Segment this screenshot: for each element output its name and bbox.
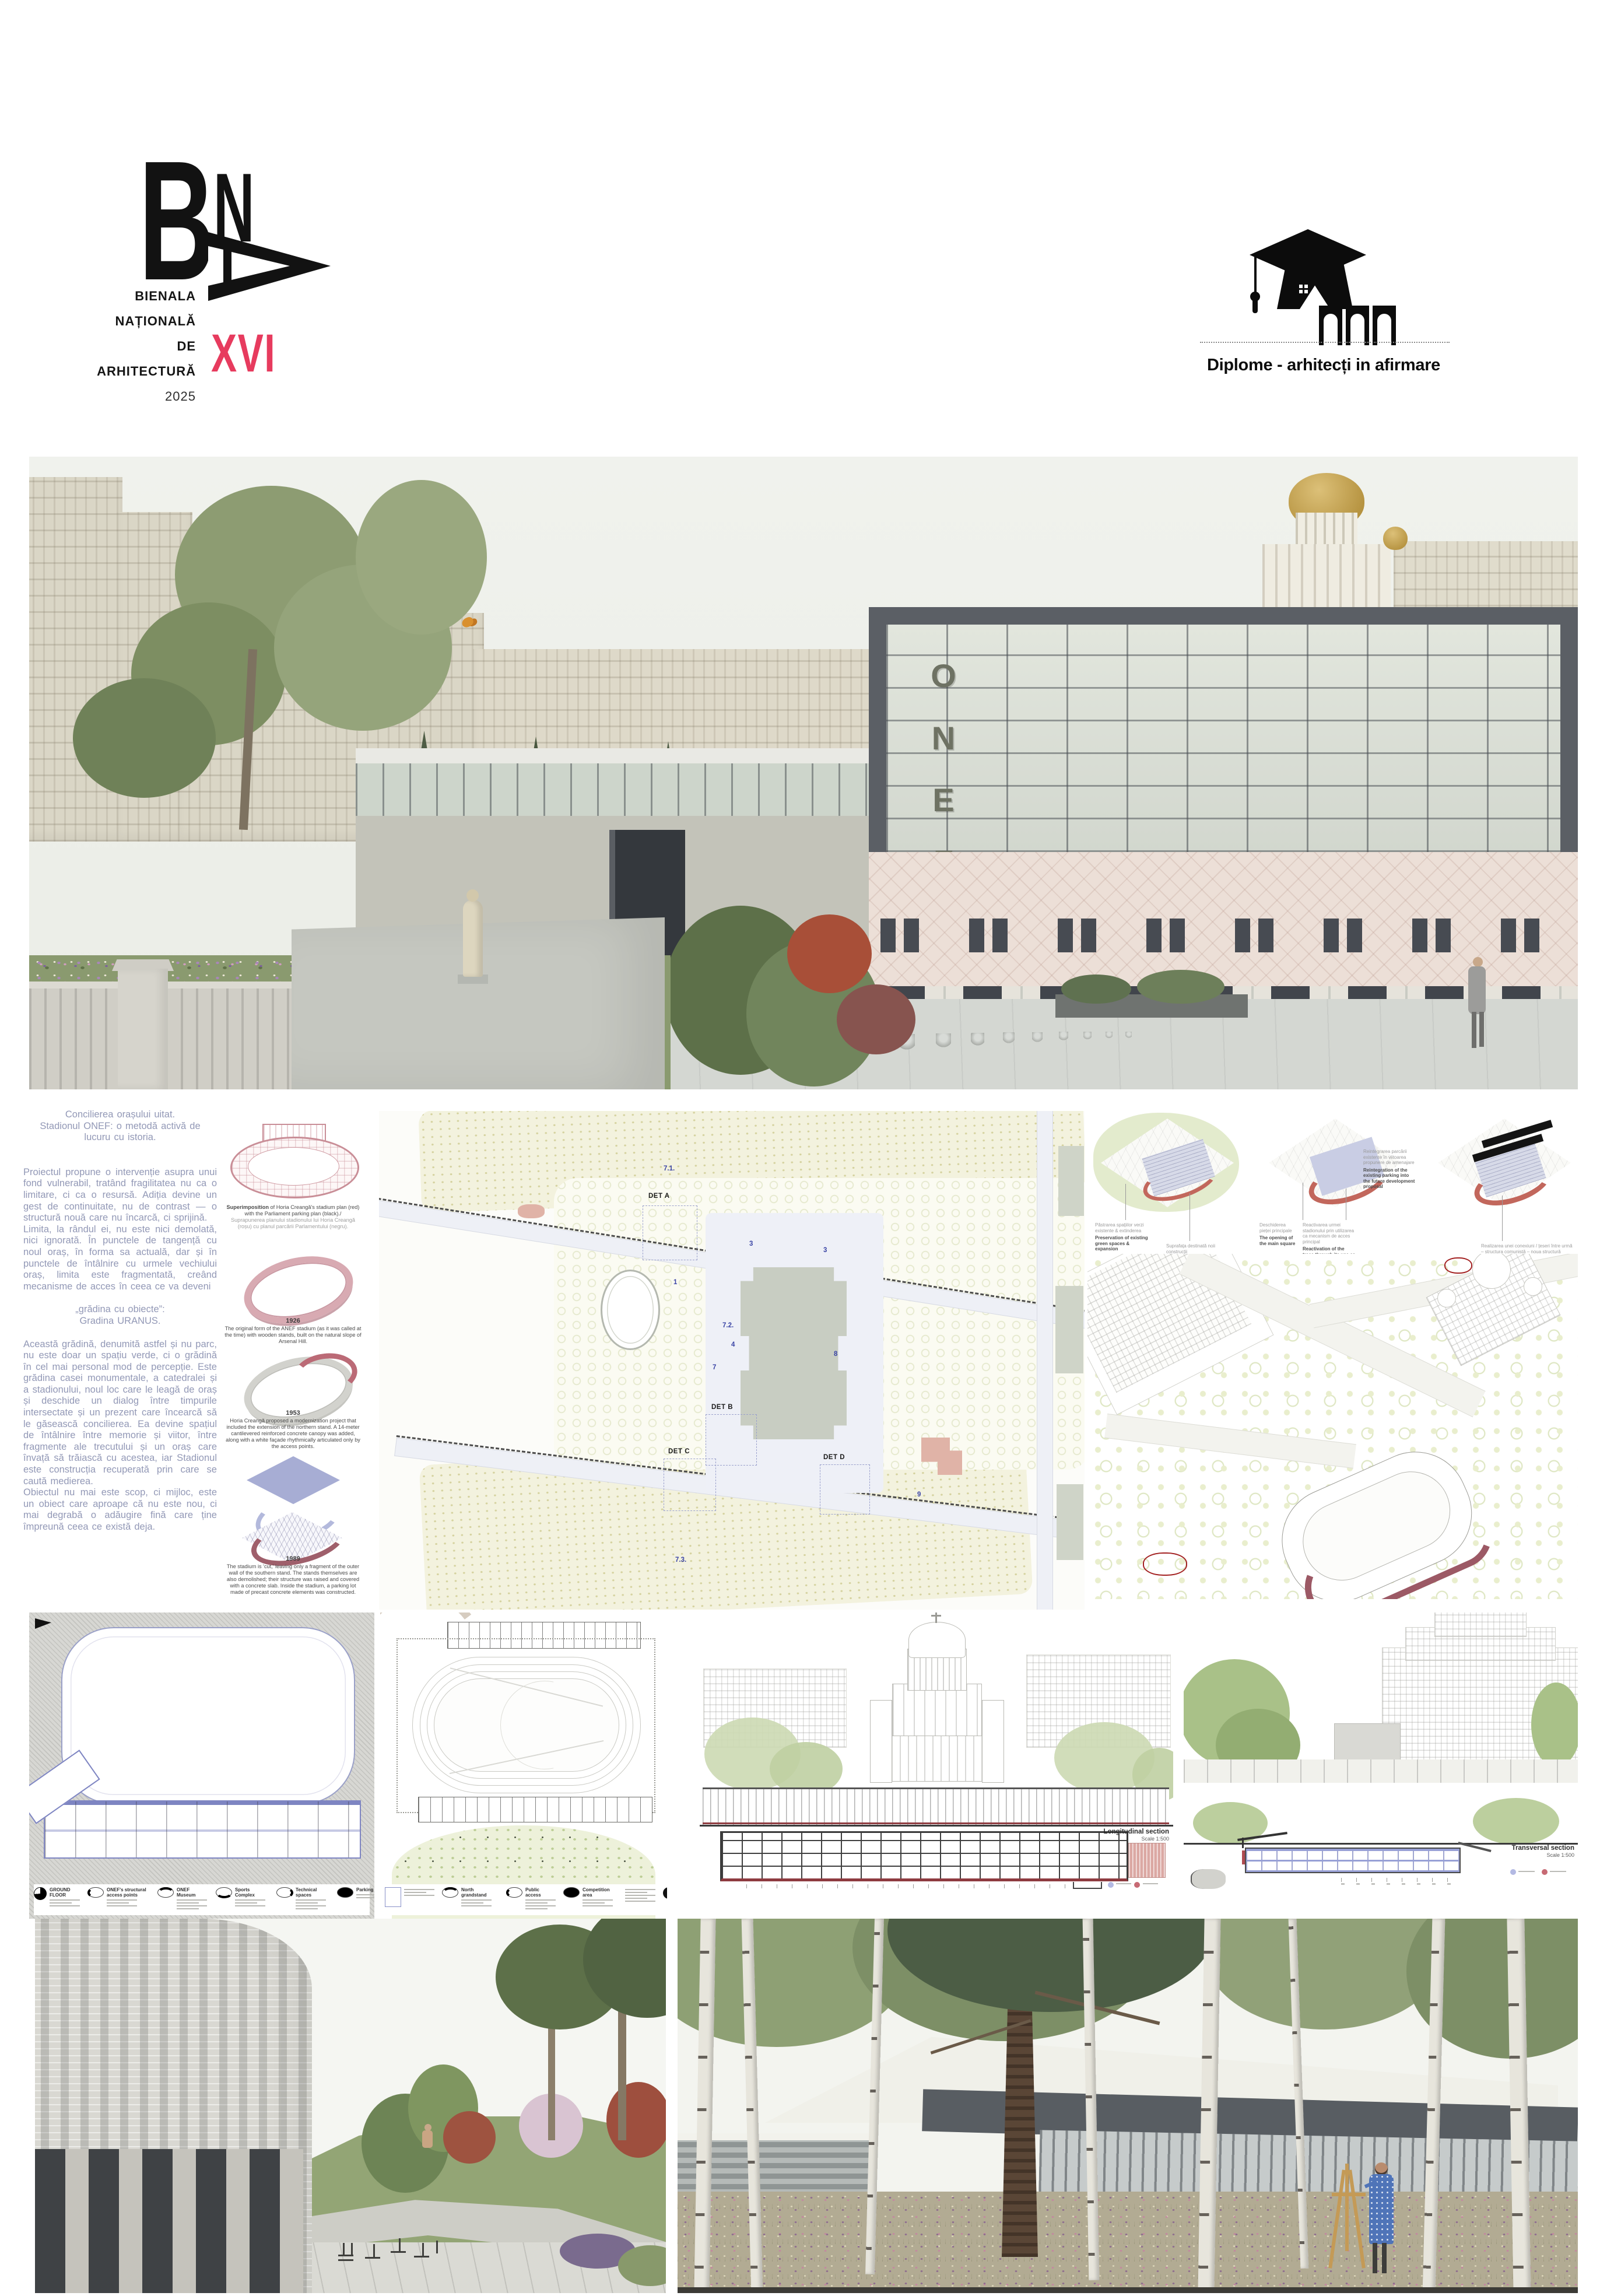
caption-en: The opening of the main square (1259, 1235, 1297, 1246)
house-window-icon (1299, 285, 1303, 288)
stadium-plan-legend: North grandstand Public access Competiti… (385, 1884, 662, 1915)
statue-body (463, 900, 483, 977)
leader-line (1502, 1196, 1503, 1241)
red-tree (606, 2082, 666, 2158)
cross-icon (935, 1613, 937, 1623)
paragraph: Obiectul nu mai este scop, ci mijloc, es… (23, 1487, 217, 1533)
title-line: lucuru cu istoria. (23, 1132, 217, 1144)
arch-icon (1373, 306, 1396, 345)
timeline-caption: Horia Creangă proposed a modernization p… (224, 1418, 362, 1450)
site-plan: DET A DET B DET C DET D 1 3 3 4 7 8 9 7.… (379, 1111, 1085, 1610)
room-label-ticks (1341, 1878, 1458, 1885)
legend-group: Sports Complex (216, 1887, 269, 1908)
legend-line (1550, 1871, 1566, 1872)
project-title: Concilierea orașului uitat. Stadionul ON… (23, 1109, 217, 1144)
tree-elevation (1473, 1798, 1559, 1845)
city-block (1057, 1484, 1083, 1560)
timeline-caption: The stadium is 'cut,' leaving only a fra… (224, 1564, 362, 1596)
legend-title: ONEF Museum (177, 1887, 208, 1898)
render-street-view (35, 1919, 666, 2293)
stadium-legend-icon (563, 1887, 580, 1898)
arch-icon (1319, 306, 1342, 345)
pedestrian-leg (1472, 1012, 1476, 1048)
bna-logo-letter-a-icon (208, 229, 331, 303)
parliament-outline (1434, 1613, 1527, 1637)
cathedral-cupola-icon (1383, 527, 1408, 550)
clock-icon (663, 1887, 667, 1899)
bna-logo-letter-b: B (139, 135, 215, 306)
garden-axonometric (1087, 1254, 1578, 1599)
cupola-outline (1524, 1277, 1542, 1296)
plan-number: 7.1. (664, 1165, 675, 1172)
stadium-legend-icon (157, 1887, 174, 1898)
onef-sign-letter: N (926, 719, 961, 757)
caption-ro: Reactivarea urmei stadionului prin utili… (1303, 1222, 1354, 1245)
caption-ro: Suprafața destinată noii construcții (1166, 1243, 1215, 1254)
plan-number: 7.3. (675, 1557, 686, 1564)
plan-number: 4 (731, 1341, 735, 1348)
stadium-level-plan: North grandstand Public access Competiti… (380, 1613, 667, 1919)
hero-render: O N E F (29, 457, 1578, 1089)
legend-group (385, 1887, 434, 1907)
house-window-icon (1304, 285, 1308, 288)
stadium-legend-icon (506, 1887, 522, 1898)
red-maple-tree (787, 914, 872, 993)
red-dot-icon (1134, 1882, 1140, 1888)
bna-year: 2025 (75, 384, 196, 409)
red-dot-icon (1542, 1869, 1548, 1875)
section-scale: Scale 1:500 (1038, 1836, 1169, 1842)
section-title: Longitudinal section (1038, 1828, 1169, 1836)
cathedral-dome-outline (908, 1622, 966, 1658)
purple-dot-icon (1510, 1869, 1516, 1875)
house-window-icon (1304, 290, 1308, 293)
red-tree (443, 2111, 496, 2164)
plan-number: 9 (917, 1491, 921, 1498)
legend-group: ONEF Museum (157, 1887, 208, 1911)
elevation-parliament-panel: Transversal section Scale 1:500 (1184, 1613, 1578, 1890)
stadium-timeline: Superimposition of Horia Creangă's stadi… (224, 1111, 362, 1604)
legend-title: Competition area (583, 1887, 617, 1898)
stadium-legend-icon (87, 1887, 104, 1898)
fascia (356, 748, 880, 763)
house-window-icon (1299, 290, 1303, 293)
caption-ro: Suprapunerea planului stadionului lui Ho… (224, 1217, 362, 1230)
legend-title: ONEF's structural access points (107, 1887, 150, 1898)
legend-title: North grandstand (461, 1887, 499, 1898)
glazed-ground-floor (35, 2149, 303, 2293)
stadium-court (61, 1627, 355, 1804)
det-b-box (706, 1414, 757, 1466)
section-title: Transversal section (1478, 1845, 1574, 1852)
cathedral-mid (892, 1684, 982, 1736)
longitudinal-caption: Longitudinal section Scale 1:500 (1038, 1828, 1169, 1842)
timeline-year: 1926 (224, 1317, 362, 1324)
concept-diagram-3: Realizarea unei conexiuni / țeseri între… (1427, 1114, 1578, 1251)
bna-wordmark: BIENALA NAȚIONALĂ DE ARHITECTURĂ 2025 (75, 283, 196, 409)
entry-wedge-icon (35, 1618, 51, 1629)
legend-group: North grandstand (442, 1887, 499, 1908)
legend-line (1143, 1883, 1158, 1884)
ground-floor-legend: GROUND FLOOR ONEF's structural access po… (34, 1884, 370, 1915)
painter-leg (1373, 2243, 1377, 2273)
cafe-chairs (343, 2243, 345, 2256)
timeline-year: 1989 (224, 1555, 362, 1562)
plan-number: 1 (673, 1279, 677, 1286)
onef-sign-letter: O (926, 657, 961, 695)
canopy-post (1242, 1838, 1244, 1848)
bna-edition-xvi: XVI (211, 327, 276, 380)
det-label: DET B (711, 1404, 733, 1411)
onef-elevation-band (703, 1787, 1169, 1825)
room-label-ticks (746, 1884, 1073, 1890)
legend-group: GROUND FLOOR (34, 1887, 80, 1908)
balustrade-pillar (118, 969, 168, 1089)
garden-path (1104, 1414, 1356, 1468)
running-track (412, 1657, 641, 1793)
plan-number: 7.2. (722, 1322, 734, 1329)
det-d-box (820, 1464, 870, 1515)
leader-line (1303, 1183, 1303, 1220)
section-scale: Scale 1:500 (1478, 1852, 1574, 1858)
leader-line (1346, 1189, 1346, 1220)
stadium-legend-icon (216, 1887, 232, 1898)
det-label: DET C (668, 1448, 690, 1455)
onef-windows (880, 919, 1578, 952)
legend-title: GROUND FLOOR (50, 1887, 80, 1898)
person-body (422, 2130, 433, 2148)
caption-ro: Deschiderea pieței principale (1259, 1222, 1292, 1233)
south-rooms-bar (418, 1797, 652, 1822)
key-plan-blob (1191, 1869, 1226, 1889)
painter-head (1375, 2162, 1388, 2175)
easel-leg (1345, 2164, 1349, 2251)
legend-group: Parking (337, 1887, 374, 1900)
bottom-dark-strip (678, 2287, 1578, 2293)
det-label: DET A (648, 1193, 670, 1200)
red-outline-marker (1143, 1552, 1187, 1576)
timeline-caption: The original form of the ANEF stadium (a… (224, 1326, 362, 1345)
bna-word-line: NAȚIONALĂ (75, 309, 196, 334)
wall-band (1184, 1759, 1578, 1783)
red-outline-marker (1444, 1257, 1472, 1274)
diplome-label: Diplome - arhitecți in afirmare (1190, 356, 1458, 375)
transversal-section-drawing (1245, 1848, 1461, 1873)
concept-diagram-2: Deschiderea pieței principale The openin… (1258, 1114, 1422, 1251)
paragraph: Această grădină, denumită astfel și nu p… (23, 1339, 217, 1488)
diplome-divider (1200, 342, 1450, 343)
cupola-outline (1437, 1289, 1456, 1308)
pedestrian-head (1473, 957, 1483, 967)
onef-stadium-footprint (601, 1270, 660, 1350)
easel-crossbar (1332, 2193, 1366, 2196)
caption-en: Preservation of existing green spaces & … (1095, 1235, 1153, 1252)
cathedral-tower (870, 1700, 892, 1783)
ground-floor-plan: GROUND FLOOR ONEF's structural access po… (29, 1613, 374, 1919)
legend-group: Public access (506, 1887, 556, 1911)
project-statement: Concilierea orașului uitat. Stadionul ON… (23, 1109, 217, 1533)
onef-glass-facade: O N E F (869, 607, 1578, 852)
legend-group (625, 1887, 655, 1904)
diagram-caption: Deschiderea pieței principale The openin… (1259, 1222, 1297, 1246)
red-base-line (703, 1822, 1169, 1824)
title-line: Concilierea orașului uitat. (23, 1109, 217, 1121)
poster: { "header": { "bna": { "letter_b": "B", … (0, 0, 1607, 2296)
caption-en: Reintegration of the existing parking in… (1363, 1168, 1417, 1190)
north-arrow-icon (34, 1887, 47, 1900)
monument-footprint (518, 1204, 545, 1218)
plan-number: 8 (834, 1351, 837, 1358)
parliament-footprint (741, 1267, 847, 1439)
legend-group: Technical spaces (276, 1887, 329, 1911)
gray-building (1334, 1723, 1401, 1761)
bna-word-line: DE (75, 334, 196, 359)
tree-elevation (1531, 1682, 1578, 1767)
street (1037, 1111, 1053, 1610)
statue-head (466, 889, 479, 902)
tree-canopy (73, 678, 216, 798)
legend-line (1116, 1883, 1131, 1884)
tassel-icon (1254, 257, 1257, 293)
tassel-icon (1252, 300, 1258, 313)
arches-icon (1319, 306, 1396, 345)
tree-canopy (356, 480, 487, 635)
ground-line (700, 1825, 1173, 1827)
purple-dot-icon (1108, 1882, 1114, 1888)
legend-group (663, 1887, 667, 1899)
cathedral-tower (982, 1700, 1004, 1783)
plan-building-bar (44, 1800, 361, 1859)
title-line: Stadionul ONEF: o metodă activă de (23, 1121, 217, 1133)
diagram-caption: Păstrarea spațiilor verzi existente & ex… (1095, 1222, 1153, 1252)
red-marker (1242, 1850, 1245, 1864)
det-c-box (664, 1459, 716, 1511)
stadium-legend-icon (442, 1887, 458, 1898)
det-a-box (643, 1205, 697, 1260)
plan-number: 3 (749, 1240, 753, 1247)
autumn-shrub (837, 984, 915, 1054)
quote-line: Gradina URANUS. (23, 1316, 217, 1327)
stadium-legend-icon (337, 1887, 353, 1898)
caption-ro: Reintegrarea parcării existente în viito… (1363, 1149, 1415, 1165)
det-label: DET D (823, 1454, 845, 1461)
brick-fragment-section (1128, 1843, 1166, 1878)
caption-ro: Păstrarea spațiilor verzi existente & ex… (1095, 1222, 1144, 1233)
quote-line: „grădina cu obiecte”: (23, 1304, 217, 1316)
leader-line (1190, 1193, 1190, 1241)
render-meadow-view (678, 1919, 1578, 2293)
city-block (1055, 1286, 1083, 1373)
elevation-cathedral-panel: Longitudinal section Scale 1:500 (700, 1613, 1173, 1890)
timeline-year: 1953 (224, 1410, 362, 1417)
plan-number: 7 (713, 1364, 716, 1371)
leader-line (1125, 1184, 1126, 1220)
plan-number: 3 (823, 1247, 827, 1254)
cross-icon (931, 1615, 941, 1617)
legend-title: Sports Complex (235, 1887, 269, 1898)
bna-word-line: BIENALA (75, 283, 196, 309)
house-icon (1277, 264, 1353, 309)
diagram-caption: Reintegrarea parcării existente în viito… (1363, 1149, 1417, 1190)
onef-sign-letter: E (926, 781, 961, 819)
clerestory-glazing (356, 763, 880, 816)
transversal-caption: Transversal section Scale 1:500 (1478, 1845, 1574, 1858)
concept-diagram-1: Păstrarea spațiilor verzi existente & ex… (1090, 1114, 1248, 1251)
scale-bar (1073, 1882, 1102, 1889)
legend-title: Technical spaces (296, 1887, 329, 1898)
legend-title: Public access (525, 1887, 556, 1898)
wildflower-meadow (678, 2192, 1578, 2293)
arch-icon (1346, 306, 1369, 345)
legend-group: Competition area (563, 1887, 617, 1908)
city-block (1058, 1146, 1084, 1216)
cafe-tables (338, 2255, 353, 2256)
caption-ro: Realizarea unei conexiuni / țeseri între… (1481, 1243, 1573, 1254)
pedestrian-leg (1479, 1012, 1484, 1047)
legend-title: Parking (356, 1887, 374, 1892)
stadium-legend-icon (276, 1887, 293, 1898)
paragraph: Limita, la rândul ei, nu este nici demol… (23, 1224, 217, 1293)
caption-lead: Superimposition (227, 1204, 269, 1210)
timeline-caption: Superimposition of Horia Creangă's stadi… (224, 1204, 362, 1230)
paragraph: Proiectul propune o intervenție asupra u… (23, 1167, 217, 1224)
legend-group: ONEF's structural access points (87, 1887, 150, 1908)
stadium-plan-field (248, 1147, 339, 1186)
painter-leg (1382, 2243, 1387, 2273)
bna-word-line: ARHITECTURĂ (75, 359, 196, 384)
quote: „grădina cu obiecte”: Gradina URANUS. (23, 1304, 217, 1327)
pedestrian-coat (1468, 966, 1486, 1014)
legend-line (1518, 1871, 1535, 1872)
